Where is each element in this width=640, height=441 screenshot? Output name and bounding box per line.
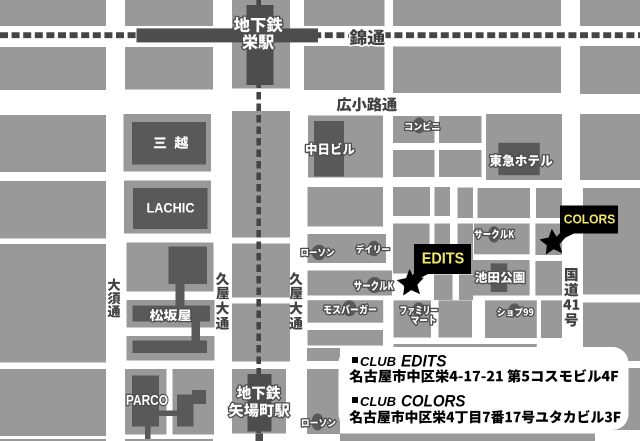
svg-text:CLUBEDITS: CLUBEDITS — [360, 352, 447, 370]
svg-text:COLORS: COLORS — [564, 212, 616, 227]
svg-text:EDITS: EDITS — [422, 251, 465, 268]
svg-text:PARCO: PARCO — [126, 393, 168, 409]
svg-text:LACHIC: LACHIC — [147, 199, 195, 215]
svg-text:CLUBCOLORS: CLUBCOLORS — [360, 392, 466, 410]
